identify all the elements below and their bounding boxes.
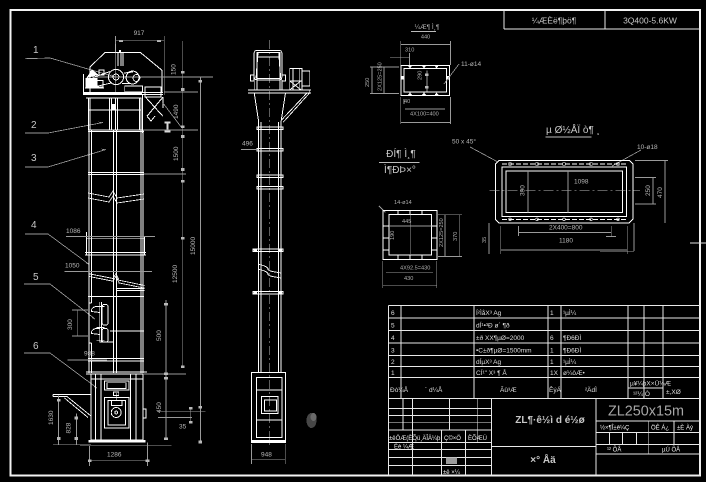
svg-text:Ãû³Æ: Ãû³Æ bbox=[500, 385, 517, 394]
svg-text:1: 1 bbox=[550, 348, 554, 355]
svg-text:390: 390 bbox=[520, 185, 527, 196]
svg-text:±È Àý: ±È Àý bbox=[677, 425, 693, 432]
svg-text:dÍµX³ Ag: dÍµX³ Ag bbox=[476, 357, 501, 366]
svg-text:4X92.5=430: 4X92.5=430 bbox=[400, 266, 430, 272]
svg-text:1500: 1500 bbox=[173, 146, 180, 161]
svg-text:ZL¶·ê½ì d é½ø: ZL¶·ê½ì d é½ø bbox=[515, 415, 585, 426]
svg-text:1086: 1086 bbox=[66, 228, 81, 235]
svg-text:445: 445 bbox=[402, 219, 411, 225]
svg-text:µ Ø½ÅÏ ò¶ ¸: µ Ø½ÅÏ ò¶ ¸ bbox=[546, 123, 600, 136]
svg-text:Ì¶ÐÞ×°: Ì¶ÐÞ×° bbox=[384, 163, 416, 176]
svg-text:¸ü¸ÄÎÄ¼þ: ¸ü¸ÄÎÄ¼þ bbox=[415, 435, 441, 442]
svg-text:4X100=400: 4X100=400 bbox=[410, 112, 439, 118]
svg-text:Ðò¼Å: Ðò¼Å bbox=[390, 385, 409, 394]
svg-text:10-ø18: 10-ø18 bbox=[637, 144, 658, 151]
svg-text:5: 5 bbox=[391, 323, 395, 330]
svg-text:150: 150 bbox=[171, 64, 178, 75]
svg-text:½×¶Î±ê¼Ç: ½×¶Î±ê¼Ç bbox=[600, 425, 630, 432]
svg-text:1: 1 bbox=[550, 310, 554, 317]
svg-text:1: 1 bbox=[391, 370, 395, 377]
svg-text:1050: 1050 bbox=[65, 263, 80, 270]
svg-text:828: 828 bbox=[66, 422, 73, 433]
svg-text:4: 4 bbox=[391, 335, 395, 342]
svg-text:´ d¼Å: ´ d¼Å bbox=[425, 385, 443, 394]
svg-text:3: 3 bbox=[31, 153, 37, 164]
svg-text:±ê ×¼: ±ê ×¼ bbox=[443, 470, 461, 476]
svg-text:ÐÍ¶ Ì¸¶: ÐÍ¶ Ì¸¶ bbox=[386, 147, 416, 160]
svg-text:2X400=800: 2X400=800 bbox=[549, 225, 583, 232]
svg-text:11-ø14: 11-ø14 bbox=[461, 61, 481, 68]
svg-text:µ¥¼þX×Ü¼Æ: µ¥¼þX×Ü¼Æ bbox=[630, 380, 672, 388]
svg-text:ÊýÁ: ÊýÁ bbox=[549, 385, 562, 394]
svg-text:370: 370 bbox=[453, 232, 459, 241]
svg-text:440: 440 bbox=[421, 35, 430, 41]
svg-text:310: 310 bbox=[405, 48, 414, 54]
svg-text:14-ø14: 14-ø14 bbox=[394, 200, 412, 206]
svg-text:Í²ÌåX³ Ag: Í²ÌåX³ Ag bbox=[476, 308, 502, 317]
svg-text:Éè ¼Æ: Éè ¼Æ bbox=[394, 444, 414, 451]
svg-text:450: 450 bbox=[156, 402, 163, 413]
svg-text:6: 6 bbox=[550, 335, 554, 342]
svg-text:±ð XX¶µØ=2000: ±ð XX¶µØ=2000 bbox=[476, 334, 525, 342]
svg-text:1286: 1286 bbox=[107, 452, 122, 459]
svg-text:15000: 15000 bbox=[190, 237, 197, 255]
svg-text:917: 917 bbox=[134, 30, 145, 37]
svg-text:2X125=250: 2X125=250 bbox=[439, 218, 445, 247]
svg-text:¼Æ¶ Ì¸¶: ¼Æ¶ Ì¸¶ bbox=[415, 22, 440, 31]
svg-text:2X125=250: 2X125=250 bbox=[378, 62, 384, 91]
svg-text:±,XØ: ±,XØ bbox=[666, 389, 681, 396]
svg-text:1180: 1180 bbox=[559, 238, 573, 245]
svg-text:µÚ ÕÅ: µÚ ÕÅ bbox=[662, 447, 680, 454]
svg-text:40: 40 bbox=[404, 99, 410, 105]
svg-text:300: 300 bbox=[67, 319, 74, 330]
svg-text:¹²¼¸Ò: ¹²¼¸Ò bbox=[633, 389, 650, 398]
svg-text:¹µÌ¼: ¹µÌ¼ bbox=[563, 357, 577, 366]
svg-text:3Q400-5.6KW: 3Q400-5.6KW bbox=[623, 16, 677, 26]
svg-text:988: 988 bbox=[84, 351, 95, 358]
svg-text:¶Ð6ÐÌ: ¶Ð6ÐÌ bbox=[563, 333, 581, 342]
svg-text:3: 3 bbox=[391, 348, 395, 355]
svg-text:12500: 12500 bbox=[172, 265, 179, 283]
svg-text:1: 1 bbox=[550, 359, 554, 366]
svg-text:50 x 45°: 50 x 45° bbox=[452, 138, 476, 146]
svg-text:CÍ¹" X³ ¶ Å: CÍ¹" X³ ¶ Å bbox=[476, 368, 507, 377]
svg-text:ZL250x15m: ZL250x15m bbox=[608, 404, 684, 420]
svg-text:dÍ¹•³Ð ø´ ¶ð: dÍ¹•³Ð ø´ ¶ð bbox=[476, 321, 510, 330]
svg-text:²ÄdÌ: ²ÄdÌ bbox=[585, 385, 597, 394]
svg-text:Ç©×Ö: Ç©×Ö bbox=[444, 435, 461, 442]
svg-text:250: 250 bbox=[645, 185, 652, 196]
svg-text:¹² ÕÅ: ¹² ÕÅ bbox=[607, 447, 621, 454]
svg-text:35: 35 bbox=[482, 237, 488, 243]
svg-text:¼ÆÈë¶þö¶: ¼ÆÈë¶þö¶ bbox=[532, 16, 577, 26]
svg-text:2: 2 bbox=[31, 120, 37, 131]
svg-text:250: 250 bbox=[365, 78, 371, 87]
svg-text:1X: 1X bbox=[550, 370, 559, 377]
svg-text:5: 5 bbox=[33, 272, 39, 283]
svg-text:4: 4 bbox=[31, 220, 37, 231]
svg-text:500: 500 bbox=[156, 330, 163, 341]
svg-text:6: 6 bbox=[391, 310, 395, 317]
svg-text:•C±ð¶µØ=1500mm: •C±ð¶µØ=1500mm bbox=[476, 347, 532, 355]
svg-text:×° Åä: ×° Åä bbox=[530, 453, 556, 466]
svg-text:ÈÕÆÚ: ÈÕÆÚ bbox=[468, 435, 487, 442]
svg-text:¹µÌ¼: ¹µÌ¼ bbox=[563, 308, 577, 317]
svg-text:190: 190 bbox=[390, 231, 396, 240]
svg-text:1630: 1630 bbox=[48, 410, 55, 425]
svg-text:1: 1 bbox=[33, 45, 39, 56]
svg-text:6: 6 bbox=[33, 341, 39, 352]
svg-text:±êÖÆ(ÈÕ: ±êÖÆ(ÈÕ bbox=[389, 435, 417, 442]
svg-text:496: 496 bbox=[242, 141, 253, 148]
svg-text:430: 430 bbox=[404, 276, 413, 282]
svg-text:35: 35 bbox=[179, 424, 187, 431]
svg-text:948: 948 bbox=[261, 452, 272, 459]
svg-text:1490: 1490 bbox=[173, 104, 180, 119]
svg-text:ÖÊ Á¿: ÖÊ Á¿ bbox=[651, 424, 669, 432]
svg-text:2: 2 bbox=[391, 359, 395, 366]
svg-text:ø¼ôÆ•: ø¼ôÆ• bbox=[563, 370, 586, 377]
svg-text:290: 290 bbox=[418, 71, 424, 80]
svg-text:¶Ð6ÐÌ: ¶Ð6ÐÌ bbox=[563, 346, 581, 355]
svg-text:1098: 1098 bbox=[574, 179, 589, 186]
svg-text:470: 470 bbox=[657, 187, 664, 198]
